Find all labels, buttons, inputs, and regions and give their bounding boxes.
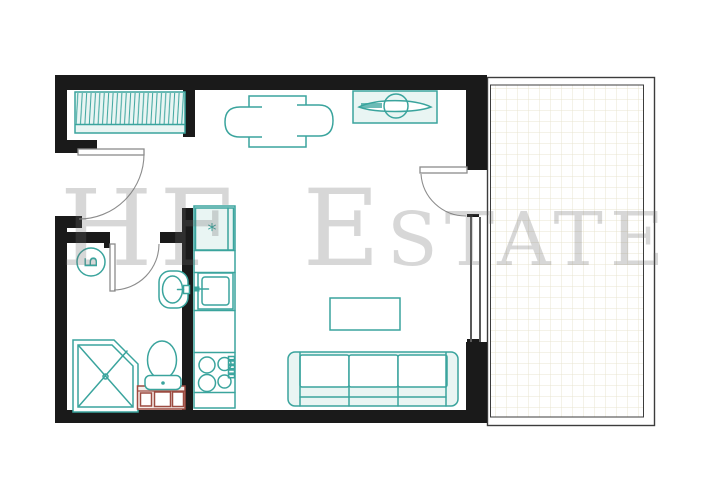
balcony-door	[420, 167, 467, 216]
washbasin	[159, 271, 190, 308]
bathroom-door-swing-arc	[114, 244, 159, 290]
vanity-drawer	[173, 392, 184, 407]
kitchen-counter: *	[194, 206, 236, 408]
boiler: Б	[77, 248, 105, 276]
window-jamb-bottom	[467, 339, 479, 342]
floor-plan: *	[0, 0, 714, 500]
coffee-table-top	[330, 298, 400, 330]
sofa-cushion	[398, 355, 447, 387]
wall-top	[55, 75, 487, 90]
balcony-door-swing-arc	[421, 174, 466, 216]
wall-right-lower	[466, 342, 487, 410]
window-pane-line	[479, 217, 481, 342]
balcony-tiled-floor	[491, 85, 644, 417]
sink-faucet	[194, 287, 200, 292]
dining-chair-left	[225, 107, 262, 137]
floor-plan-drawing: *	[0, 0, 714, 500]
bathroom-door-leaf	[110, 244, 115, 291]
dining-chair-right	[297, 105, 333, 136]
kitchen-sink	[194, 273, 234, 309]
entry-door	[78, 149, 144, 219]
wardrobe	[75, 92, 185, 133]
vanity-drawer	[155, 392, 171, 407]
wall-bath-door-jamb	[104, 232, 110, 248]
sink-outer	[198, 273, 233, 309]
wall-kitchen	[182, 208, 193, 410]
wall-bath-left	[67, 232, 110, 243]
wall-bath-right	[160, 232, 182, 243]
fridge: *	[196, 208, 234, 250]
wall-right-upper	[466, 75, 487, 170]
boiler-label: Б	[82, 256, 102, 268]
fridge-snowflake: *	[208, 220, 217, 241]
tv-stand	[353, 91, 437, 123]
balcony-door-leaf	[420, 167, 467, 173]
basin-faucet	[184, 286, 190, 294]
vanity-drawer	[141, 393, 152, 406]
entry-door-swing-arc	[79, 154, 144, 219]
bathroom-door	[110, 244, 159, 291]
sofa-cushion	[300, 355, 349, 387]
entry-door-leaf	[78, 149, 144, 155]
sofa-cushion	[349, 355, 398, 387]
window-pane-line	[470, 217, 472, 342]
window-right	[470, 217, 481, 342]
toilet-bowl	[148, 341, 177, 379]
toilet-flush-button	[161, 381, 165, 385]
chair-outline	[297, 105, 333, 136]
sofa	[288, 352, 458, 406]
wall-left-lower	[55, 216, 67, 423]
corner-shower	[73, 340, 138, 412]
window-jamb-top	[467, 214, 479, 217]
chair-outline	[225, 107, 262, 137]
tv-soundbar	[361, 103, 382, 108]
coffee-table	[330, 298, 400, 330]
toilet	[145, 341, 181, 390]
balcony	[488, 78, 655, 426]
wardrobe-hanging-clothes	[76, 93, 184, 125]
